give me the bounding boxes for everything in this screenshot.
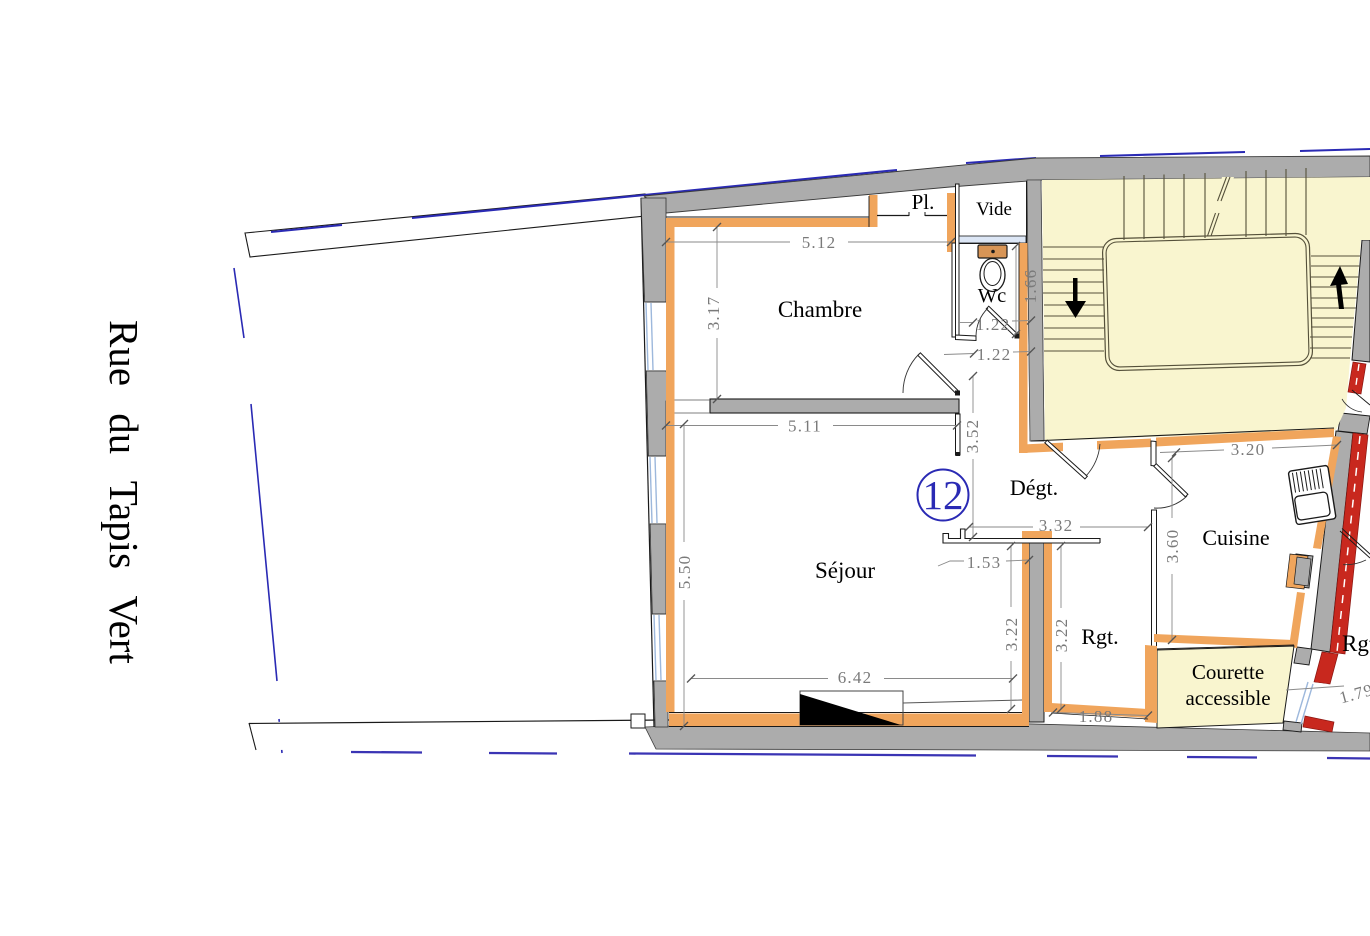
svg-text:3.52: 3.52 xyxy=(963,419,982,454)
svg-text:1.88: 1.88 xyxy=(1079,707,1114,726)
svg-text:Wc: Wc xyxy=(978,285,1006,307)
svg-text:3.60: 3.60 xyxy=(1163,529,1182,564)
svg-text:3.32: 3.32 xyxy=(1039,516,1074,535)
svg-text:Vide: Vide xyxy=(976,199,1012,220)
svg-text:Cuisine: Cuisine xyxy=(1202,525,1269,550)
svg-text:3.17: 3.17 xyxy=(704,296,723,331)
svg-text:Chambre: Chambre xyxy=(778,297,862,322)
svg-text:Séjour: Séjour xyxy=(815,558,875,583)
svg-text:Rgt.: Rgt. xyxy=(1081,624,1118,649)
svg-text:6.42: 6.42 xyxy=(838,668,873,687)
svg-text:3.22: 3.22 xyxy=(1052,618,1071,653)
svg-text:1.66: 1.66 xyxy=(1021,269,1040,304)
svg-text:Rgt: Rgt xyxy=(1342,631,1370,656)
svg-text:Rue du Tapis Vert: Rue du Tapis Vert xyxy=(101,320,147,664)
svg-text:5.11: 5.11 xyxy=(788,417,822,436)
svg-text:Dégt.: Dégt. xyxy=(1010,475,1058,500)
svg-text:1.22: 1.22 xyxy=(977,345,1012,364)
svg-text:5.12: 5.12 xyxy=(802,233,837,252)
svg-text:Pl.: Pl. xyxy=(912,190,935,214)
svg-text:3.20: 3.20 xyxy=(1231,440,1266,459)
svg-text:1.22: 1.22 xyxy=(976,315,1011,334)
svg-text:1.53: 1.53 xyxy=(967,553,1002,572)
svg-text:accessible: accessible xyxy=(1185,686,1270,710)
svg-text:Courette: Courette xyxy=(1192,660,1264,684)
svg-text:5.50: 5.50 xyxy=(675,555,694,590)
svg-text:12: 12 xyxy=(923,472,964,518)
svg-text:3.22: 3.22 xyxy=(1002,617,1021,652)
